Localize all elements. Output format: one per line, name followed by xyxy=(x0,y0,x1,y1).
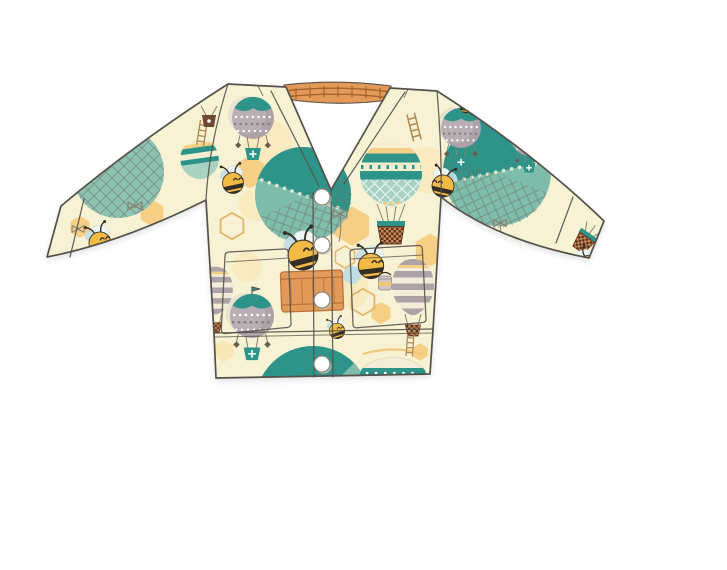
product-photo: Flat-lay product mockup of a cream baby … xyxy=(0,0,727,570)
cardigan xyxy=(47,84,607,462)
back-neck-band xyxy=(284,82,391,103)
teal-net-balloon-left-sleeve xyxy=(72,126,164,218)
cardigan-mockup-image: Flat-lay product mockup of a cream baby … xyxy=(0,0,727,570)
fabric-print xyxy=(71,84,607,462)
